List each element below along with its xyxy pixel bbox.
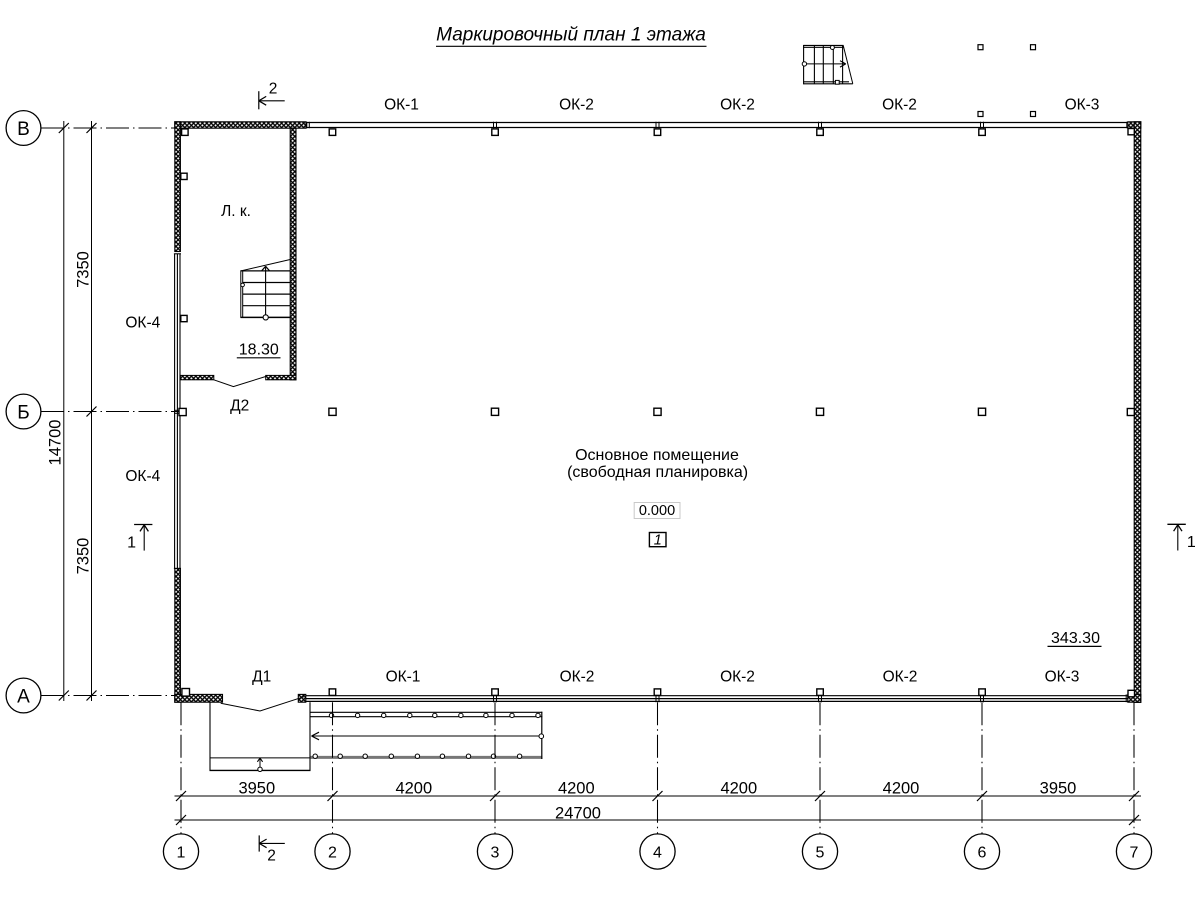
svg-text:4200: 4200 (720, 779, 757, 797)
svg-text:5: 5 (816, 844, 825, 861)
svg-text:ОК-2: ОК-2 (882, 97, 917, 114)
svg-text:4200: 4200 (558, 779, 595, 797)
svg-text:Д1: Д1 (252, 669, 271, 686)
svg-text:1: 1 (127, 535, 136, 552)
svg-text:14700: 14700 (46, 420, 64, 466)
svg-text:Л. к.: Л. к. (221, 203, 251, 220)
svg-text:ОК-2: ОК-2 (720, 669, 755, 686)
svg-text:В: В (17, 119, 30, 140)
svg-text:6: 6 (978, 844, 987, 861)
svg-text:Основное помещение: Основное помещение (575, 447, 739, 464)
svg-text:4200: 4200 (883, 779, 920, 797)
svg-text:ОК-2: ОК-2 (883, 669, 918, 686)
svg-text:ОК-2: ОК-2 (559, 97, 594, 114)
svg-text:7350: 7350 (74, 251, 92, 288)
svg-text:4: 4 (653, 844, 662, 861)
svg-text:1: 1 (654, 532, 662, 548)
svg-text:ОК-2: ОК-2 (720, 97, 755, 114)
svg-text:А: А (17, 686, 30, 707)
svg-text:2: 2 (267, 848, 276, 865)
svg-text:Маркировочный план 1 этажа: Маркировочный план 1 этажа (436, 25, 706, 46)
svg-text:1: 1 (1187, 534, 1196, 551)
svg-text:18.30: 18.30 (239, 342, 279, 359)
svg-text:7350: 7350 (74, 538, 92, 575)
svg-text:0.000: 0.000 (639, 503, 675, 519)
svg-text:24700: 24700 (555, 804, 601, 822)
svg-text:4200: 4200 (395, 779, 432, 797)
svg-text:Б: Б (17, 402, 29, 423)
svg-text:343.30: 343.30 (1051, 630, 1100, 647)
svg-text:ОК-2: ОК-2 (560, 669, 595, 686)
svg-text:ОК-1: ОК-1 (386, 669, 421, 686)
svg-text:Д2: Д2 (230, 398, 249, 415)
svg-text:ОК-4: ОК-4 (125, 468, 160, 485)
svg-text:ОК-3: ОК-3 (1045, 669, 1080, 686)
svg-text:2: 2 (269, 81, 278, 98)
svg-text:1: 1 (177, 844, 186, 861)
svg-text:ОК-1: ОК-1 (384, 97, 419, 114)
svg-text:2: 2 (328, 844, 337, 861)
svg-text:3950: 3950 (1040, 779, 1077, 797)
svg-text:3950: 3950 (238, 779, 275, 797)
svg-text:3: 3 (491, 844, 500, 861)
svg-text:ОК-4: ОК-4 (125, 315, 160, 332)
svg-text:7: 7 (1130, 844, 1139, 861)
svg-text:(свободная планировка): (свободная планировка) (567, 464, 748, 481)
svg-text:ОК-3: ОК-3 (1065, 97, 1100, 114)
